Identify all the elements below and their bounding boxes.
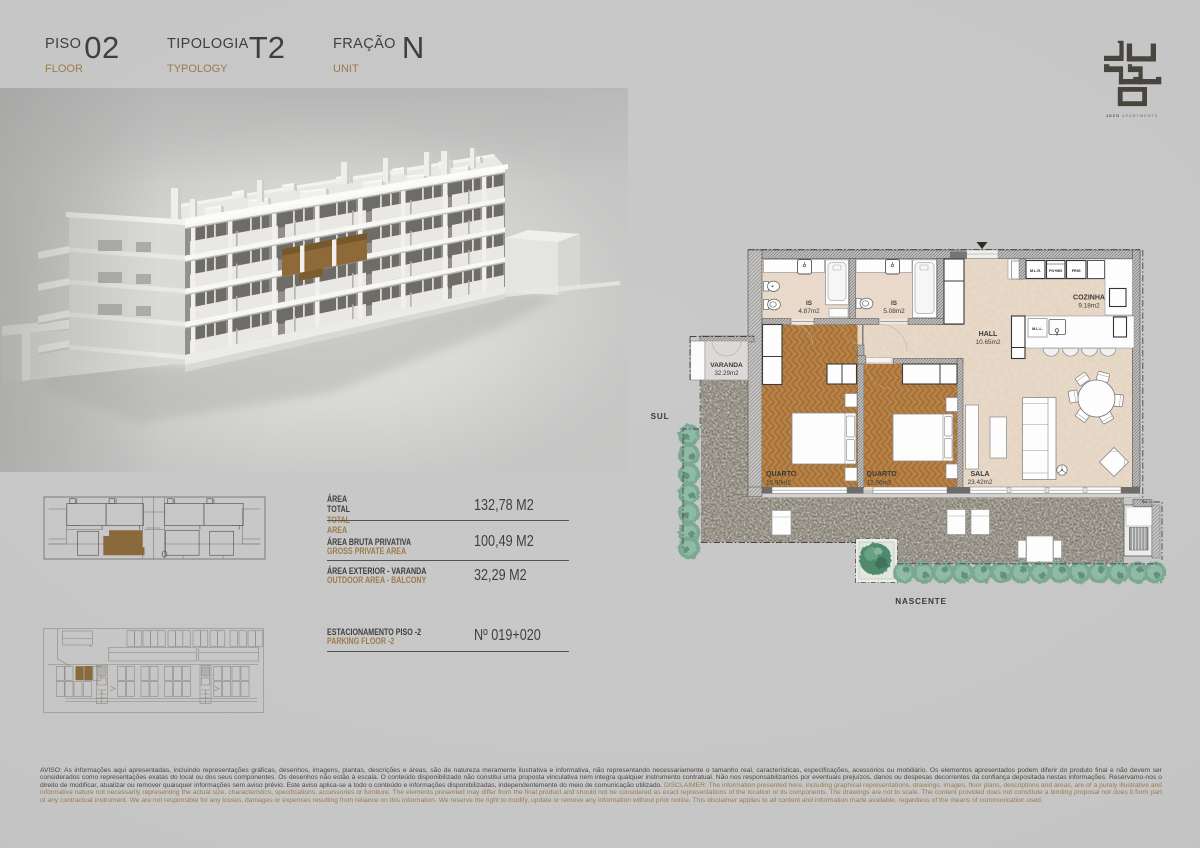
svg-text:HALL: HALL — [979, 331, 998, 338]
svg-text:M.L.R.: M.L.R. — [1030, 269, 1041, 273]
svg-text:SALA: SALA — [970, 471, 989, 478]
svg-text:IS: IS — [891, 300, 898, 307]
svg-text:FO+MO: FO+MO — [1049, 269, 1062, 273]
svg-text:32.29m2: 32.29m2 — [714, 370, 739, 377]
svg-text:M.L.L.: M.L.L. — [1032, 327, 1043, 331]
svg-text:12.06m2: 12.06m2 — [867, 480, 892, 487]
svg-text:23.42m2: 23.42m2 — [968, 479, 993, 486]
svg-text:15.90m2: 15.90m2 — [766, 480, 791, 487]
svg-text:4.87m2: 4.87m2 — [798, 308, 820, 315]
svg-text:IS: IS — [806, 300, 813, 307]
svg-text:5.08m2: 5.08m2 — [883, 308, 905, 315]
svg-text:NASCENTE: NASCENTE — [895, 597, 946, 606]
svg-text:VARANDA: VARANDA — [710, 362, 743, 369]
svg-text:QUARTO: QUARTO — [867, 471, 898, 478]
svg-text:FRIG: FRIG — [1072, 269, 1081, 273]
svg-text:9.18m2: 9.18m2 — [1078, 303, 1100, 310]
svg-text:COZINHA: COZINHA — [1073, 295, 1105, 302]
svg-text:10.65m2: 10.65m2 — [976, 339, 1001, 346]
svg-text:QUARTO: QUARTO — [766, 471, 797, 478]
svg-text:JUZO APARTMENTS: JUZO APARTMENTS — [1106, 113, 1159, 118]
svg-text:SUL: SUL — [651, 412, 670, 421]
